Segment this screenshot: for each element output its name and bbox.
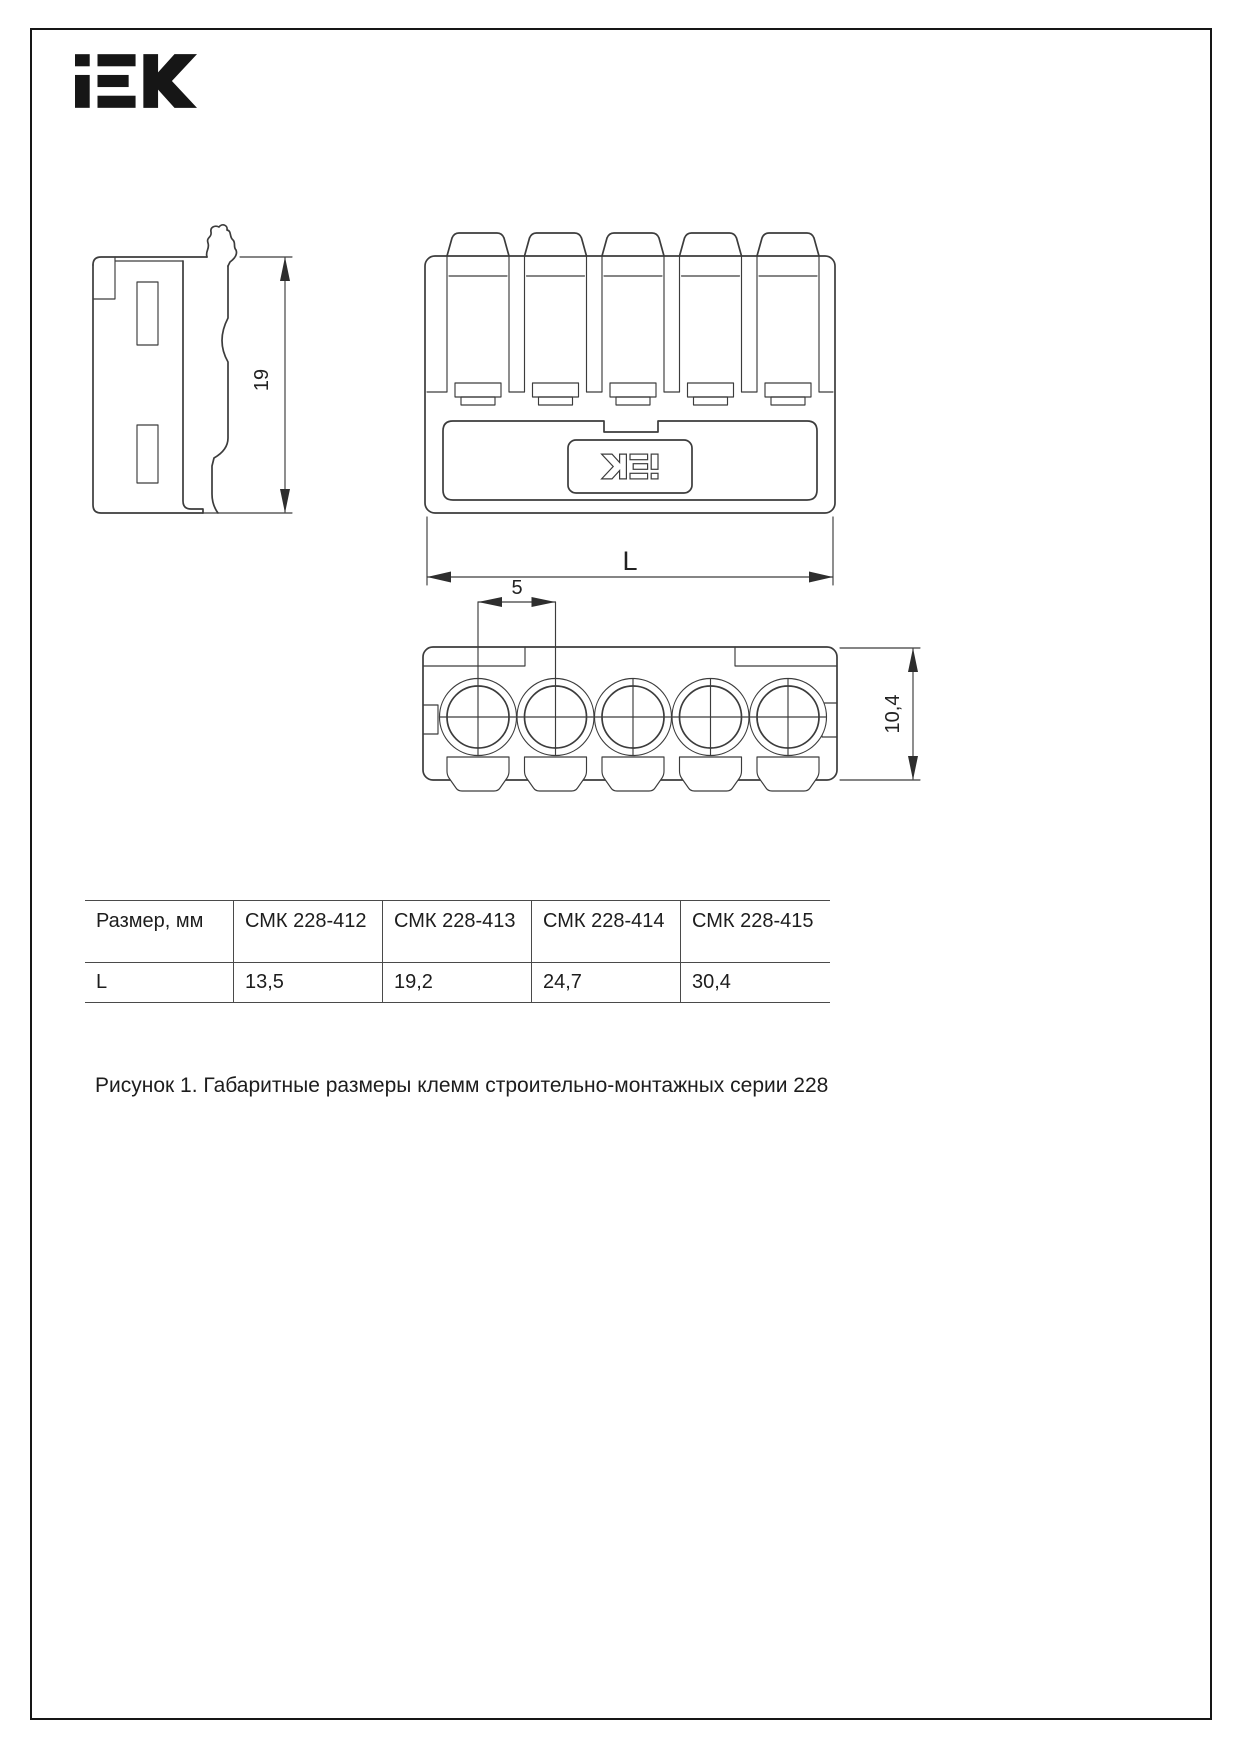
wire-ports (455, 383, 811, 405)
datasheet-page: 19 (0, 0, 1244, 1750)
table-cell-415-value: 30,4 (680, 963, 830, 1003)
brand-plate (568, 440, 692, 493)
dimension-label-10-4: 10,4 (882, 695, 904, 734)
side-view-drawing (93, 225, 237, 513)
dimension-label-5: 5 (511, 577, 522, 599)
dimension-label-19: 19 (251, 369, 273, 391)
dimensions-table: Размер, мм СМК 228-412 СМК 228-413 СМК 2… (85, 900, 830, 1003)
mounting-lever-outline (207, 225, 237, 266)
table-header-smk412: СМК 228-412 (233, 901, 382, 963)
table-header-smk414: СМК 228-414 (531, 901, 680, 963)
table-cell-412-value: 13,5 (233, 963, 382, 1003)
table-cell-414-value: 24,7 (531, 963, 680, 1003)
lever-tabs (447, 757, 819, 791)
technical-drawing-canvas: 19 (0, 0, 1244, 1750)
table-cell-413-value: 19,2 (382, 963, 531, 1003)
table-header-smk415: СМК 228-415 (680, 901, 830, 963)
table-header-size: Размер, мм (85, 901, 233, 963)
side-view-dimension-19: 19 (203, 257, 292, 513)
dimension-label-L: L (622, 546, 637, 576)
front-view-dimension-L: L (427, 517, 833, 585)
table-cell-L: L (85, 963, 233, 1003)
top-view-dimension-10-4: 10,4 (840, 648, 920, 780)
front-view-drawing (425, 233, 835, 513)
figure-caption: Рисунок 1. Габаритные размеры клемм стро… (95, 1074, 828, 1098)
table-header-smk413: СМК 228-413 (382, 901, 531, 963)
top-view-drawing (423, 647, 837, 791)
